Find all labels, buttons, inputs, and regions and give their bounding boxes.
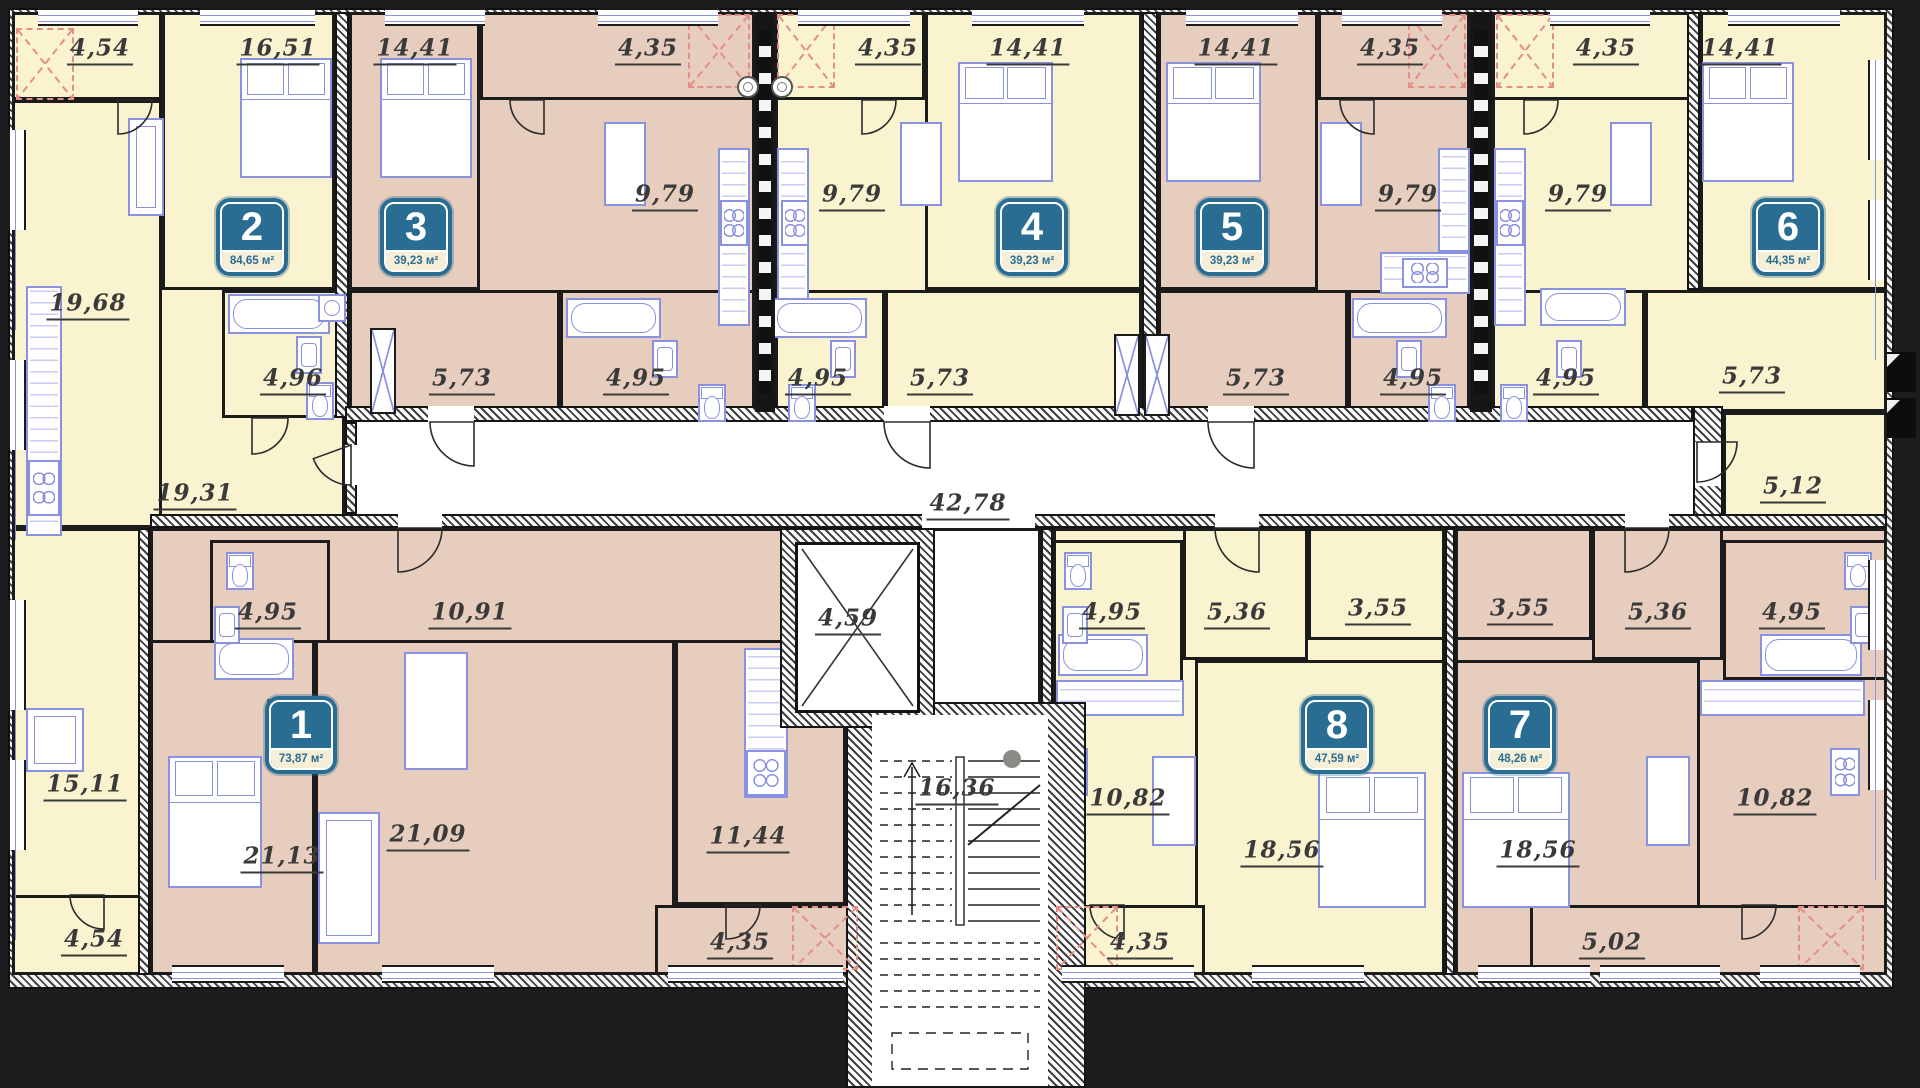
window: [8, 600, 26, 710]
room-area-label: 15,11: [43, 771, 126, 802]
room-area-label: 19,31: [153, 480, 236, 511]
apartment-number: 7: [1490, 702, 1550, 748]
door-swing-icon: [726, 905, 727, 906]
room: [1183, 528, 1308, 660]
stove-icon: [1402, 258, 1448, 288]
vent-shaft: [1470, 12, 1492, 412]
room-area-label: 21,13: [240, 843, 323, 874]
door-swing-icon: [252, 418, 253, 419]
balcony-marker: [1496, 14, 1554, 88]
bed-icon: [1166, 62, 1261, 182]
apartment-badge-3: 339,23 м²: [380, 198, 452, 276]
door-swing-icon: [1259, 528, 1260, 529]
apartment-badge-5: 539,23 м²: [1196, 198, 1268, 276]
bed-icon: [958, 62, 1053, 182]
room-area-label: 4,35: [1573, 35, 1639, 66]
door-swing-icon: [351, 445, 352, 446]
door-swing-icon: [862, 100, 863, 101]
apartment-number: 1: [271, 702, 331, 748]
room-area-label: 5,02: [1579, 929, 1645, 960]
bed-icon: [240, 58, 332, 178]
kitchen-counter-icon: [1438, 148, 1470, 252]
apartment-number: 2: [222, 204, 282, 250]
door-swing-icon: [1374, 100, 1375, 101]
room-area-label: 18,56: [1240, 837, 1323, 868]
vent-circle-icon: [771, 76, 793, 98]
window: [382, 965, 494, 983]
dining-table-icon: [900, 122, 942, 206]
apartment-area: 48,26 м²: [1490, 748, 1550, 768]
room-area-label: 11,44: [706, 823, 789, 854]
balcony-x-icon: [794, 908, 860, 972]
room-area-label: 5,73: [1223, 365, 1289, 396]
sofa-icon: [318, 812, 380, 944]
room-area-label: 4,35: [1107, 929, 1173, 960]
door-opening: [1208, 406, 1254, 422]
room-area-label: 9,79: [819, 181, 885, 212]
room-area-label: 14,41: [373, 35, 456, 66]
dining-table-icon: [1610, 122, 1652, 206]
exterior-step-icon: [1882, 398, 1916, 438]
apartment-number: 8: [1307, 702, 1367, 748]
window: [1186, 8, 1298, 26]
room-area-label: 4,95: [1533, 365, 1599, 396]
toilet-icon: [698, 384, 726, 422]
balcony-marker: [16, 28, 74, 100]
apartment-area: 73,87 м²: [271, 748, 331, 768]
window: [1252, 965, 1364, 983]
glazed-panel-icon: [1114, 334, 1140, 416]
balcony-marker: [792, 906, 858, 970]
room-area-label: 19,68: [46, 290, 129, 321]
room-area-label: 18,56: [1496, 837, 1579, 868]
room-area-label: 10,91: [428, 599, 511, 630]
kitchen-counter-icon: [1700, 680, 1865, 716]
window: [8, 360, 26, 450]
wall-segment: [335, 12, 349, 418]
door-swing-icon: [1697, 442, 1698, 443]
room-area-label: 9,79: [632, 181, 698, 212]
window: [1868, 200, 1886, 280]
toilet-icon: [226, 552, 254, 590]
room-area-label: 16,51: [236, 35, 319, 66]
toilet-icon: [1064, 552, 1092, 590]
window: [385, 8, 485, 26]
window: [1868, 560, 1886, 650]
stove-icon: [781, 200, 809, 246]
room-area-label: 4,54: [67, 35, 133, 66]
window: [668, 965, 843, 983]
door-swing-icon: [118, 100, 119, 101]
room: [1592, 528, 1723, 660]
room-area-label: 21,09: [386, 821, 469, 852]
room-area-label: 14,41: [1194, 35, 1277, 66]
door-swing-icon: [104, 895, 105, 896]
door-swing-icon: [544, 100, 545, 101]
stove-icon: [746, 750, 786, 796]
room: [885, 290, 1142, 418]
apartment-badge-4: 439,23 м²: [996, 198, 1068, 276]
room-area-label: 4,35: [855, 35, 921, 66]
stairs-icon: [872, 715, 1048, 1086]
door-swing-icon: [1625, 528, 1626, 529]
exterior-step-icon: [1882, 352, 1916, 392]
stairs-area-label: 16,36: [915, 775, 998, 806]
apartment-number: 5: [1202, 204, 1262, 250]
room-area-label: 9,79: [1545, 181, 1611, 212]
bathtub-icon: [1352, 298, 1447, 338]
room-area-label: 3,55: [1345, 595, 1411, 626]
room: [1158, 290, 1348, 418]
apartment-badge-6: 644,35 м²: [1752, 198, 1824, 276]
bathtub-icon: [772, 298, 867, 338]
window: [1868, 60, 1886, 160]
room-area-label: 5,73: [907, 365, 973, 396]
dining-table-icon: [404, 652, 468, 770]
room-area-label: 5,36: [1204, 599, 1270, 630]
glazed-panel-icon: [370, 328, 396, 414]
apartment-badge-8: 847,59 м²: [1301, 696, 1373, 774]
washer-icon: [318, 294, 346, 322]
door-swing-icon: [930, 422, 931, 423]
apartment-number: 3: [386, 204, 446, 250]
door-opening: [884, 406, 930, 422]
bed-icon: [380, 58, 472, 178]
window: [172, 965, 284, 983]
room-area-label: 4,54: [61, 926, 127, 957]
bed-icon: [1318, 772, 1426, 908]
bathtub-icon: [1540, 288, 1626, 326]
apartment-area: 39,23 м²: [1202, 250, 1262, 270]
stove-icon: [28, 460, 60, 516]
room-area-label: 4,96: [260, 365, 326, 396]
stairwell: [872, 715, 1048, 1086]
apartment-area: 47,59 м²: [1307, 748, 1367, 768]
dining-table-icon: [1320, 122, 1362, 206]
bathtub-icon: [1760, 634, 1862, 676]
room-area-label: 4,35: [615, 35, 681, 66]
desk-icon: [26, 708, 84, 772]
room-area-label: 5,12: [1760, 473, 1826, 504]
room: [1723, 412, 1887, 528]
balcony-marker: [1798, 906, 1864, 970]
bathtub-icon: [566, 298, 661, 338]
vent-circle-icon: [737, 76, 759, 98]
room-area-label: 4,95: [1380, 365, 1446, 396]
floor-plan: 4,5419,6816,514,9619,3114,414,359,795,73…: [0, 0, 1920, 1088]
bed-icon: [1702, 62, 1794, 182]
vent-openings: [1474, 30, 1488, 394]
stove-icon: [720, 200, 748, 246]
apartment-badge-1: 173,87 м²: [265, 696, 337, 774]
glazed-panel-icon: [1144, 334, 1170, 416]
door-opening: [1625, 514, 1669, 528]
room-area-label: 4,95: [235, 599, 301, 630]
room-area-label: 10,82: [1086, 785, 1169, 816]
door-swing-icon: [1524, 100, 1525, 101]
door-opening: [1215, 514, 1259, 528]
door-swing-icon: [1124, 905, 1125, 906]
window: [1062, 965, 1194, 983]
vent-shaft: [755, 12, 775, 412]
door-swing-icon: [1254, 422, 1255, 423]
door-opening: [398, 514, 442, 528]
door-swing-icon: [474, 422, 475, 423]
door-opening: [1695, 442, 1721, 486]
apartment-area: 39,23 м²: [1002, 250, 1062, 270]
stove-icon: [1830, 748, 1860, 796]
window: [38, 8, 138, 26]
window: [1728, 8, 1840, 26]
room-area-label: 4,95: [1079, 599, 1145, 630]
apartment-number: 4: [1002, 204, 1062, 250]
window: [1478, 965, 1590, 983]
apartment-badge-7: 748,26 м²: [1484, 696, 1556, 774]
balcony-x-icon: [1498, 16, 1556, 90]
room-area-label: 5,36: [1625, 599, 1691, 630]
apartment-area: 39,23 м²: [386, 250, 446, 270]
room-area-label: 5,73: [429, 365, 495, 396]
window: [798, 8, 910, 26]
room-area-label: 4,95: [785, 365, 851, 396]
room-area-label: 5,73: [1719, 363, 1785, 394]
wall-segment: [1445, 528, 1455, 975]
dining-table-icon: [1646, 756, 1690, 846]
apartment-badge-2: 284,65 м²: [216, 198, 288, 276]
bathtub-icon: [228, 294, 330, 334]
window: [598, 8, 718, 26]
room-area-label: 10,82: [1733, 785, 1816, 816]
room: [1645, 290, 1887, 412]
room-area-label: 3,55: [1487, 595, 1553, 626]
wall-segment: [138, 528, 150, 975]
toilet-icon: [1500, 384, 1528, 422]
apartment-number: 6: [1758, 204, 1818, 250]
room-area-label: 4,95: [603, 365, 669, 396]
door-opening: [428, 406, 474, 422]
corridor-area-label: 42,78: [926, 490, 1009, 521]
window: [1550, 8, 1650, 26]
window: [8, 130, 26, 230]
bathtub-icon: [214, 638, 294, 680]
window: [200, 8, 315, 26]
window: [1868, 700, 1886, 790]
room-area-label: 4,35: [707, 929, 773, 960]
apartment-area: 84,65 м²: [222, 250, 282, 270]
room: [920, 528, 1041, 718]
window: [1600, 965, 1720, 983]
elevator-area-label: 4,59: [815, 605, 881, 636]
sofa-icon: [128, 118, 164, 216]
stove-icon: [1496, 200, 1524, 246]
balcony-x-icon: [1800, 908, 1866, 972]
door-swing-icon: [1742, 905, 1743, 906]
room-area-label: 14,41: [986, 35, 1069, 66]
room-area-label: 4,95: [1759, 599, 1825, 630]
room-area-label: 4,35: [1357, 35, 1423, 66]
window: [1342, 8, 1442, 26]
window: [1760, 965, 1860, 983]
window: [972, 8, 1084, 26]
room-area-label: 9,79: [1375, 181, 1441, 212]
window: [8, 760, 26, 850]
apartment-area: 44,35 м²: [1758, 250, 1818, 270]
door-swing-icon: [398, 528, 399, 529]
room-area-label: 14,41: [1698, 35, 1781, 66]
vent-openings: [759, 30, 771, 394]
